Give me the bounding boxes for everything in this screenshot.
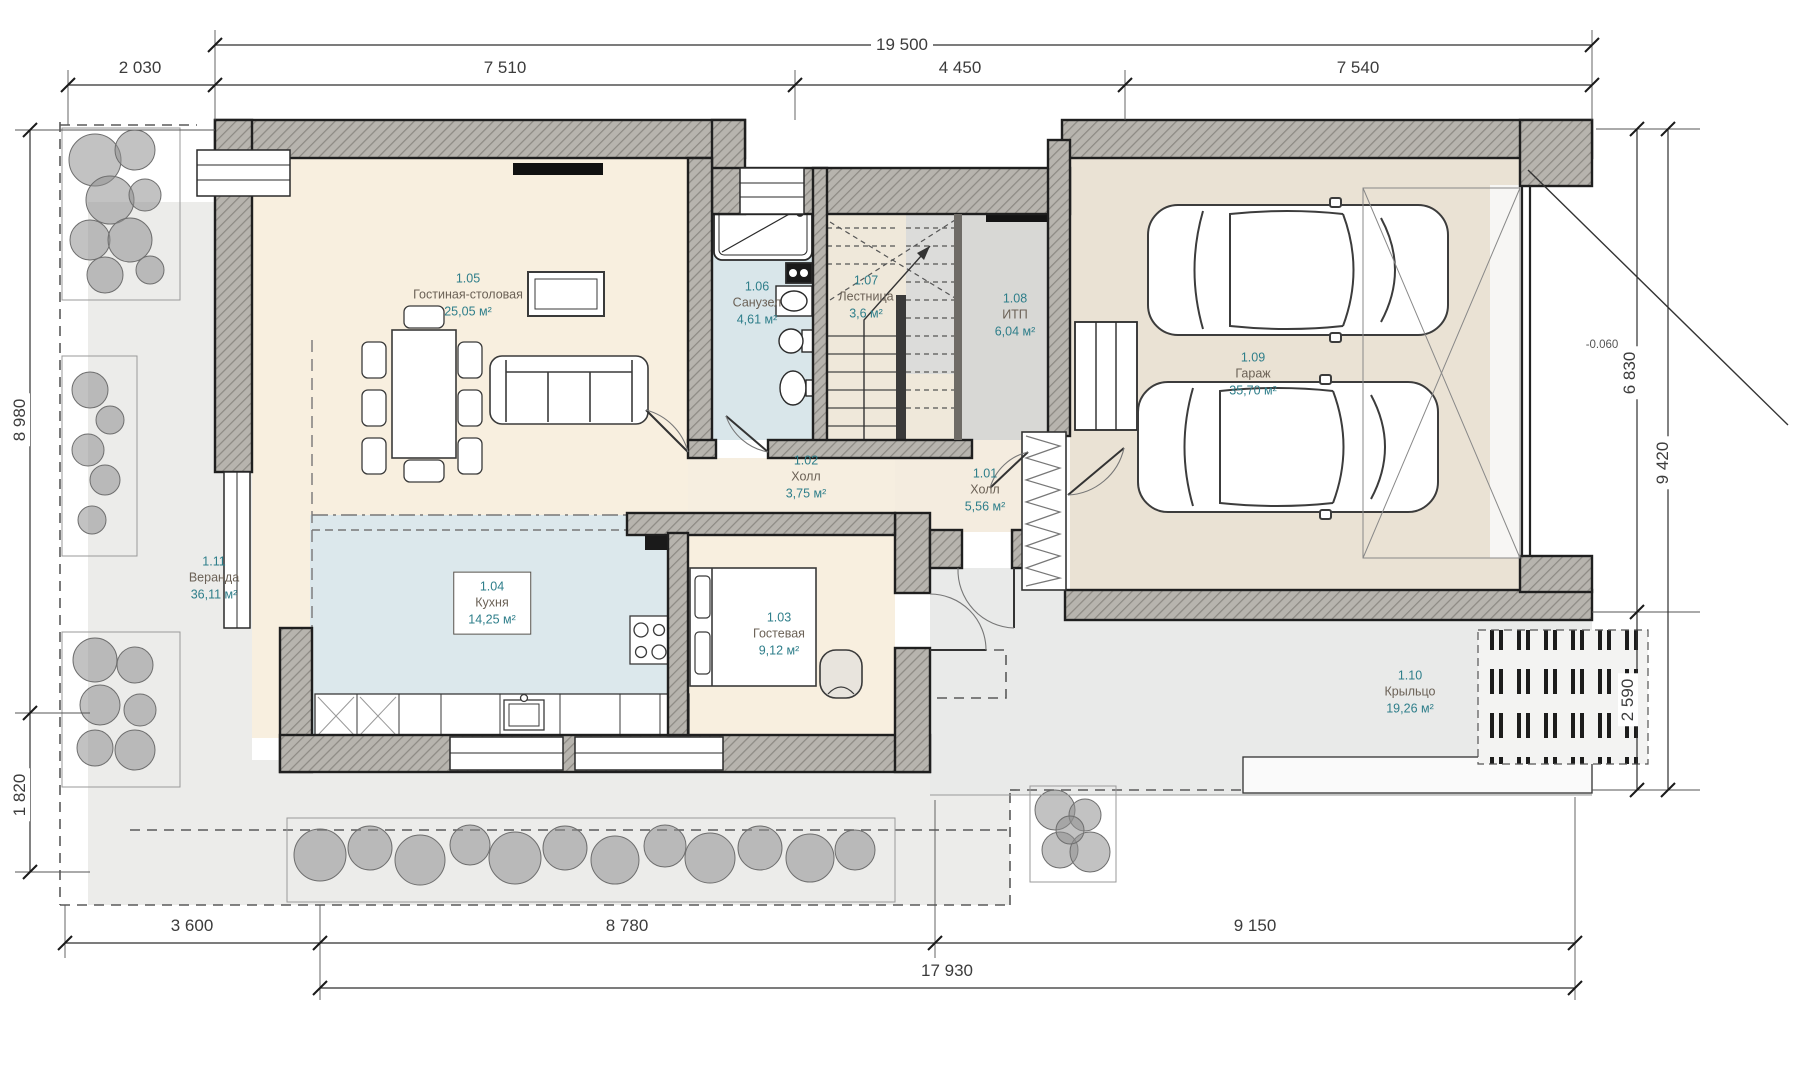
garage-door [1522, 185, 1530, 556]
room-name: Гараж [1235, 366, 1270, 382]
dim-top-seg-3: 4 450 [934, 58, 987, 78]
room-name: Лестница [838, 289, 893, 305]
tv-cabinet [528, 272, 604, 316]
car-2 [1138, 375, 1438, 519]
stove [630, 616, 670, 664]
room-number: 1.04 [480, 579, 504, 595]
room-area: 19,26 м² [1386, 700, 1434, 716]
floor-plan-drawing [0, 0, 1798, 1080]
room-label-garage: 1.09 Гараж 35,70 м² [1229, 350, 1277, 399]
window-kitchen-1 [450, 737, 563, 770]
room-label-porch: 1.10 Крыльцо 19,26 м² [1385, 668, 1436, 717]
room-area: 25,05 м² [444, 303, 492, 319]
dim-top-seg-4: 7 540 [1332, 58, 1385, 78]
room-number: 1.07 [854, 273, 878, 289]
dim-top-seg-2: 7 510 [479, 58, 532, 78]
room-area: 6,04 м² [995, 323, 1036, 339]
car-1 [1148, 198, 1448, 342]
elevation-mark: -0.060 [1584, 339, 1621, 351]
garage-steps [1075, 322, 1137, 430]
room-label-guest: 1.03 Гостевая 9,12 м² [753, 610, 805, 659]
window-kitchen-2 [575, 737, 723, 770]
room-label-living-dining: 1.05 Гостиная-столовая 25,05 м² [413, 271, 523, 320]
room-name: Гостиная-столовая [413, 287, 523, 303]
kitchen-sink [504, 695, 544, 731]
sofa [490, 356, 648, 424]
room-label-bathroom: 1.06 Санузел 4,61 м² [733, 279, 782, 328]
stair-rail-wall [896, 295, 906, 458]
dim-right-1: 6 830 [1620, 347, 1640, 400]
room-area: 36,11 м² [191, 586, 238, 602]
dining-table [392, 330, 456, 458]
room-area: 4,61 м² [737, 311, 778, 327]
room-number: 1.10 [1398, 668, 1422, 684]
armchair [820, 650, 862, 698]
room-label-hall-1: 1.01 Холл 5,56 м² [965, 466, 1006, 515]
room-area: 5,56 м² [965, 498, 1006, 514]
room-number: 1.11 [202, 554, 225, 570]
dim-right-2: 9 420 [1653, 437, 1673, 490]
toilet [779, 329, 813, 353]
room-area: 9,12 м² [759, 642, 800, 658]
room-number: 1.08 [1003, 291, 1027, 307]
room-name: Холл [970, 482, 999, 498]
dim-left-2: 1 820 [10, 769, 30, 822]
dim-right-3: 2 590 [1618, 674, 1638, 727]
room-name: Кухня [475, 595, 508, 611]
washbasin [776, 286, 812, 316]
room-area: 3,6 м² [849, 305, 883, 321]
window-above-shower [740, 168, 804, 214]
washing-machine [786, 263, 812, 283]
room-name: Веранда [189, 570, 239, 586]
room-label-itp: 1.08 ИТП 6,04 м² [995, 291, 1036, 340]
room-area: 35,70 м² [1229, 382, 1277, 398]
room-number: 1.02 [794, 453, 818, 469]
room-name: Холл [791, 469, 820, 485]
room-number: 1.09 [1241, 350, 1265, 366]
gate-swing-line [1528, 170, 1788, 425]
room-number: 1.01 [973, 466, 997, 482]
high-window-bar [513, 163, 603, 175]
room-label-veranda: 1.11 Веранда 36,11 м² [189, 554, 239, 603]
room-label-kitchen: 1.04 Кухня 14,25 м² [453, 572, 531, 635]
insulation-strip [1022, 432, 1066, 590]
dim-bottom-seg-2: 8 780 [601, 916, 654, 936]
dim-bottom-total: 17 930 [916, 961, 978, 981]
room-label-hall-2: 1.02 Холл 3,75 м² [786, 453, 827, 502]
glass-door-veranda [224, 472, 250, 628]
kitchen-counter [315, 694, 689, 738]
dim-left-1: 8 980 [10, 394, 30, 447]
floor-plan-page: 1.01 Холл 5,56 м² 1.02 Холл 3,75 м² 1.03… [0, 0, 1798, 1080]
room-area: 14,25 м² [468, 611, 516, 627]
room-number: 1.05 [456, 271, 480, 287]
room-name: Санузел [733, 295, 782, 311]
room-name: ИТП [1002, 307, 1028, 323]
room-number: 1.03 [767, 610, 791, 626]
room-number: 1.06 [745, 279, 769, 295]
dim-bottom-seg-1: 3 600 [166, 916, 219, 936]
dim-top-seg-1: 2 030 [114, 58, 167, 78]
room-name: Гостевая [753, 626, 805, 642]
room-name: Крыльцо [1385, 684, 1436, 700]
room-area: 3,75 м² [786, 485, 827, 501]
room-label-stairs: 1.07 Лестница 3,6 м² [838, 273, 893, 322]
dim-bottom-seg-3: 9 150 [1229, 916, 1282, 936]
window-top-left [197, 150, 290, 196]
dim-top-total: 19 500 [871, 35, 933, 55]
